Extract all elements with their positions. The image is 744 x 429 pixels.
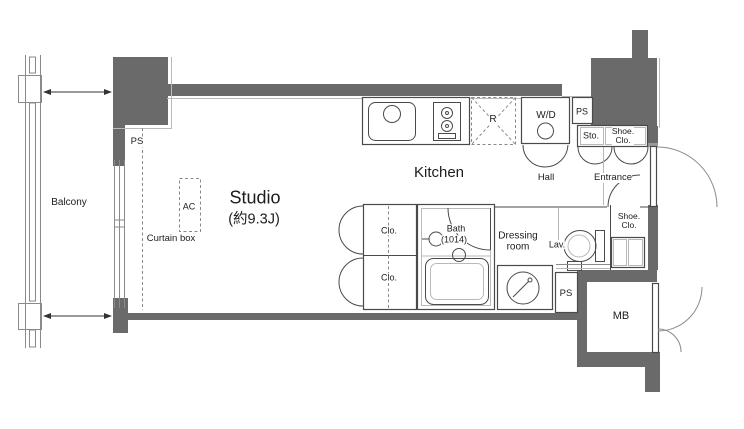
- label-studio: Studio: [229, 189, 280, 208]
- washer-dryer-doors: [523, 145, 568, 167]
- label-entrance: Entrance: [594, 173, 632, 183]
- wall-window-end: [113, 298, 128, 333]
- wall-bottom: [126, 313, 577, 320]
- label-refrigerator: R: [489, 115, 496, 126]
- wall-right-above-door: [648, 126, 658, 145]
- railing-glass-bottom: [30, 330, 36, 347]
- shoe-closet-lower-cabinet: [612, 238, 645, 268]
- meter-box-doors: [653, 284, 703, 353]
- label-shoe-closet-lower: Shoe. Clo.: [618, 212, 640, 230]
- closets: [339, 205, 417, 310]
- wall-mb-top: [577, 270, 657, 282]
- balcony-railing: [19, 55, 42, 348]
- wall-column-top-right: [591, 58, 657, 128]
- label-kitchen: Kitchen: [414, 165, 464, 181]
- label-hall: Hall: [538, 173, 554, 183]
- dressing-room-fixtures: [498, 208, 559, 310]
- railing-glass-middle: [30, 103, 36, 301]
- balcony-window: [114, 160, 125, 308]
- mb-door-arcs: [658, 287, 702, 352]
- railing-glass-top: [30, 57, 36, 73]
- label-ps-top-right: PS: [576, 107, 588, 116]
- label-lavatory: Lav.: [549, 240, 565, 249]
- washer-dryer-space: [522, 98, 570, 168]
- shoe-closet-doors: [578, 147, 648, 164]
- label-shoe-closet-lower-line2: Clo.: [618, 221, 640, 230]
- railing-post-bottom: [19, 304, 42, 330]
- toilet-tank: [596, 231, 605, 262]
- wall-right-below-door: [648, 205, 658, 270]
- label-curtain-box: Curtain box: [147, 234, 196, 244]
- entrance-door: [651, 147, 718, 208]
- label-storage: Sto.: [583, 131, 599, 140]
- label-ac: AC: [183, 202, 196, 211]
- label-ps-bottom: PS: [560, 289, 573, 299]
- kitchen-counter: [363, 98, 470, 145]
- entrance-door-leaf: [651, 147, 657, 207]
- label-closet-lower: Clo.: [381, 273, 397, 282]
- floorplan-canvas: Balcony PS AC Curtain box Studio (約9.3J)…: [0, 0, 744, 429]
- label-studio-area: (約9.3J): [228, 212, 280, 227]
- closet-bifold-doors: [339, 206, 363, 306]
- wall-mb-left: [577, 270, 587, 358]
- toilet-control: [568, 262, 582, 271]
- label-balcony: Balcony: [51, 198, 87, 209]
- label-dressing-room-line2: room: [498, 242, 537, 253]
- label-dressing-room-line1: Dressing: [498, 232, 537, 243]
- wall-mb-right: [645, 352, 660, 392]
- entrance-door-arc: [657, 147, 717, 207]
- label-dressing-room: Dressing room: [498, 232, 537, 253]
- label-shoe-closet-upper-line2: Clo.: [612, 136, 634, 145]
- label-meter-box: MB: [613, 311, 630, 323]
- label-bath-size: (1014): [441, 235, 467, 244]
- label-closet-upper: Clo.: [381, 226, 397, 235]
- wall-top: [167, 84, 562, 96]
- railing-post-top: [19, 76, 42, 103]
- label-ps-top-left: PS: [131, 137, 144, 147]
- label-washer-dryer: W/D: [536, 111, 555, 122]
- bathroom: [418, 205, 495, 310]
- mb-door-leaf: [653, 284, 659, 353]
- label-shoe-closet-upper: Shoe. Clo.: [612, 127, 634, 145]
- wall-column-top-left: [113, 57, 168, 125]
- label-bath: Bath: [447, 224, 466, 233]
- wall-stub-top: [632, 30, 648, 58]
